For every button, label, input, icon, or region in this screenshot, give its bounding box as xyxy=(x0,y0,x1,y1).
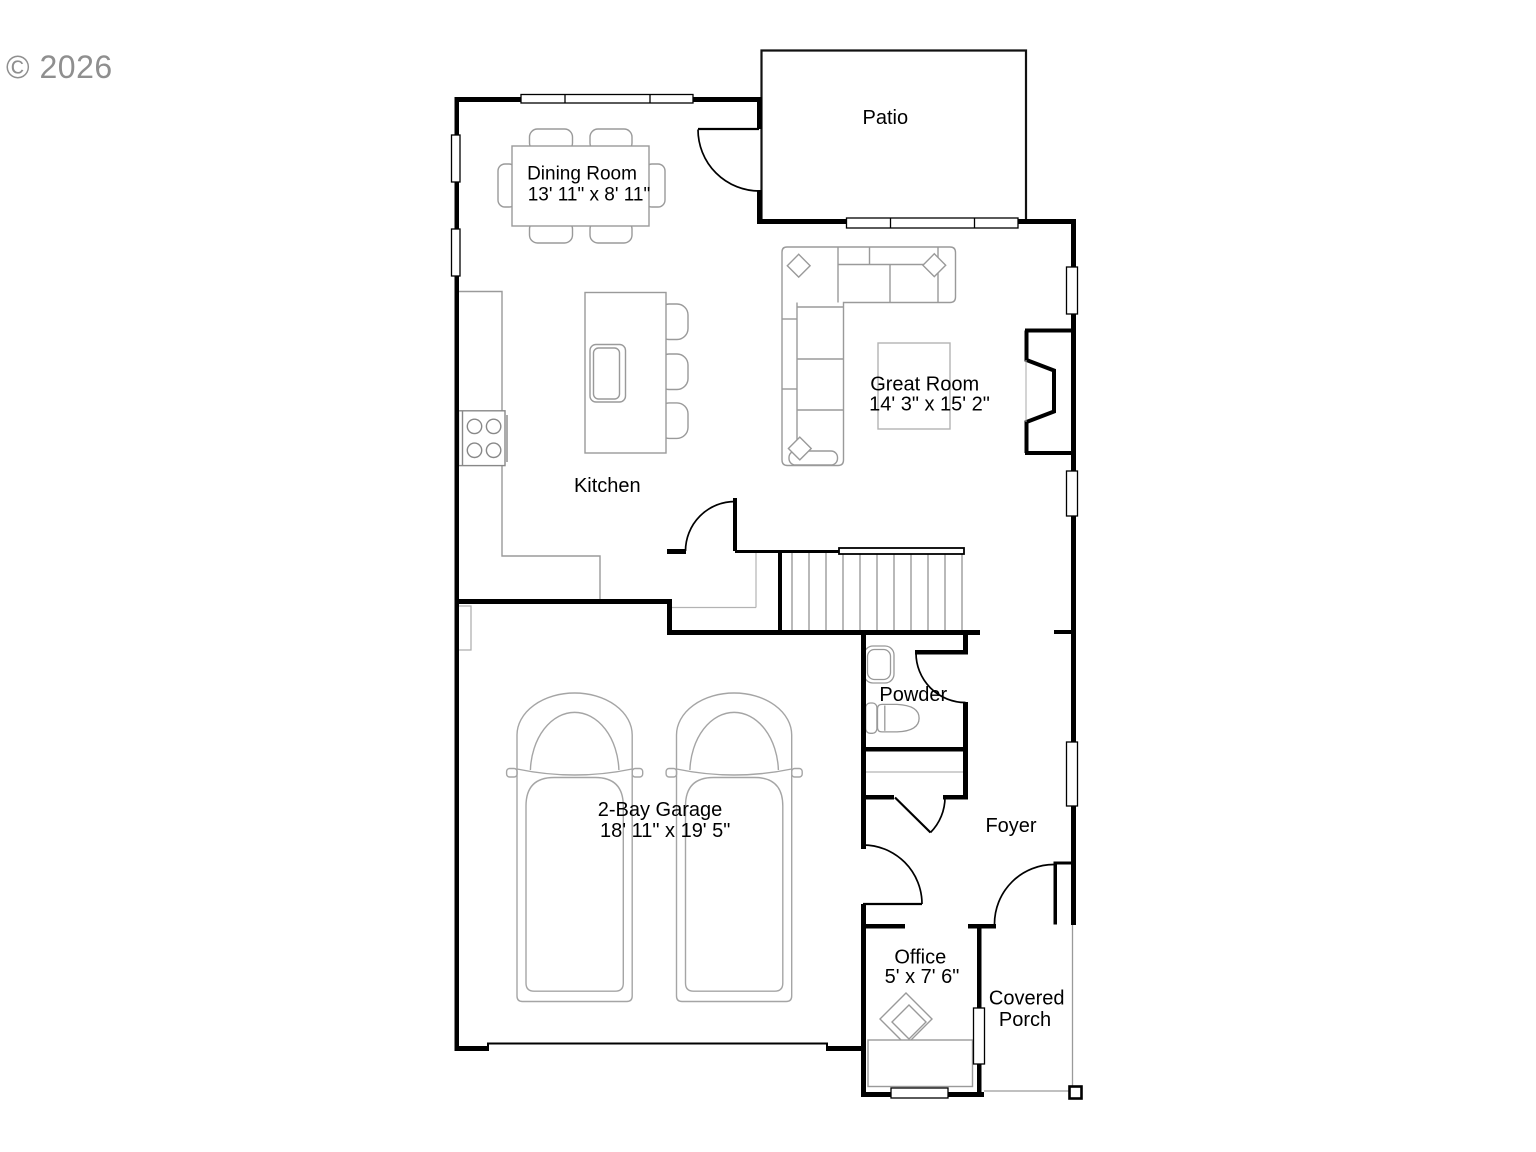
svg-text:13' 11" x 8' 11": 13' 11" x 8' 11" xyxy=(528,185,651,206)
svg-text:14' 3" x 15' 2": 14' 3" x 15' 2" xyxy=(869,394,990,416)
svg-text:Patio: Patio xyxy=(863,107,909,129)
svg-text:Kitchen: Kitchen xyxy=(574,475,641,497)
svg-text:5' x 7' 6": 5' x 7' 6" xyxy=(885,966,960,988)
svg-text:© 2026: © 2026 xyxy=(6,49,113,85)
svg-text:Covered: Covered xyxy=(989,988,1065,1010)
svg-text:Dining Room: Dining Room xyxy=(527,164,637,185)
svg-text:Foyer: Foyer xyxy=(985,815,1036,837)
svg-text:Great Room: Great Room xyxy=(870,374,979,396)
svg-text:Porch: Porch xyxy=(999,1009,1051,1031)
svg-text:18' 11" x 19' 5": 18' 11" x 19' 5" xyxy=(600,820,730,842)
svg-text:Powder: Powder xyxy=(879,684,947,706)
svg-text:2-Bay Garage: 2-Bay Garage xyxy=(598,799,723,821)
